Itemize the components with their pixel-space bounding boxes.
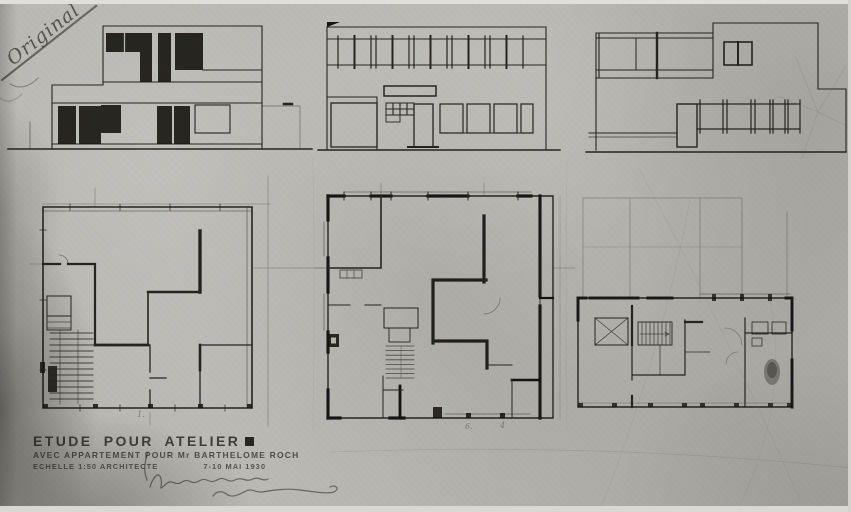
photo-border-top	[0, 0, 851, 4]
photo-border-bottom	[0, 506, 851, 512]
photo-vignette	[0, 0, 851, 512]
drawing-photo: Original	[0, 0, 851, 512]
